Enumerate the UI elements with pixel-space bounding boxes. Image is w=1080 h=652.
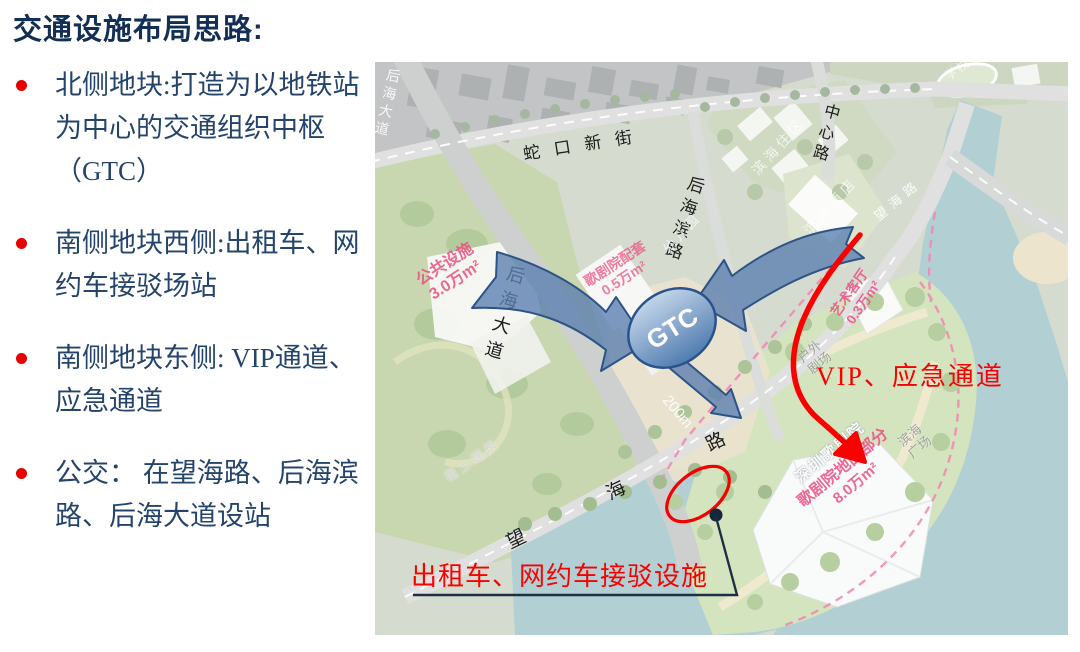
bullet-text: 北侧地块:打造为以地铁站为中心的交通组织中枢（GTC） [55,64,367,193]
list-item: 南侧地块东侧: VIP通道、应急通道 [16,337,372,423]
bullet-icon [16,80,27,91]
taxi-facility-label: 出租车、网约车接驳设施 [411,556,708,593]
bullet-icon [16,238,27,249]
page-title: 交通设施布局思路: [13,6,264,48]
bullet-text: 南侧地块东侧: VIP通道、应急通道 [55,337,367,423]
bullet-text: 公交： 在望海路、后海滨路、后海大道设站 [55,452,367,538]
bullet-icon [16,353,27,364]
vip-channel-label: VIP、应急通道 [816,356,1004,393]
list-item: 北侧地块:打造为以地铁站为中心的交通组织中枢（GTC） [16,64,372,193]
site-plan-map: 蛇口新街 中心路 后海滨路 后海大道 后海大道 望海路 望海路 滨海住区 滨海酒… [375,62,1068,635]
bullet-icon [16,468,27,479]
list-item: 南侧地块西侧:出租车、网约车接驳场站 [16,222,372,308]
list-item: 公交： 在望海路、后海滨路、后海大道设站 [16,452,372,538]
bullet-list: 北侧地块:打造为以地铁站为中心的交通组织中枢（GTC） 南侧地块西侧:出租车、网… [16,64,372,567]
red-annotation-layer: VIP、应急通道 出租车、网约车接驳设施 [375,62,1068,635]
slide: 交通设施布局思路: 北侧地块:打造为以地铁站为中心的交通组织中枢（GTC） 南侧… [0,0,1080,652]
bullet-text: 南侧地块西侧:出租车、网约车接驳场站 [55,222,367,308]
text-panel: 交通设施布局思路: 北侧地块:打造为以地铁站为中心的交通组织中枢（GTC） 南侧… [0,0,375,652]
